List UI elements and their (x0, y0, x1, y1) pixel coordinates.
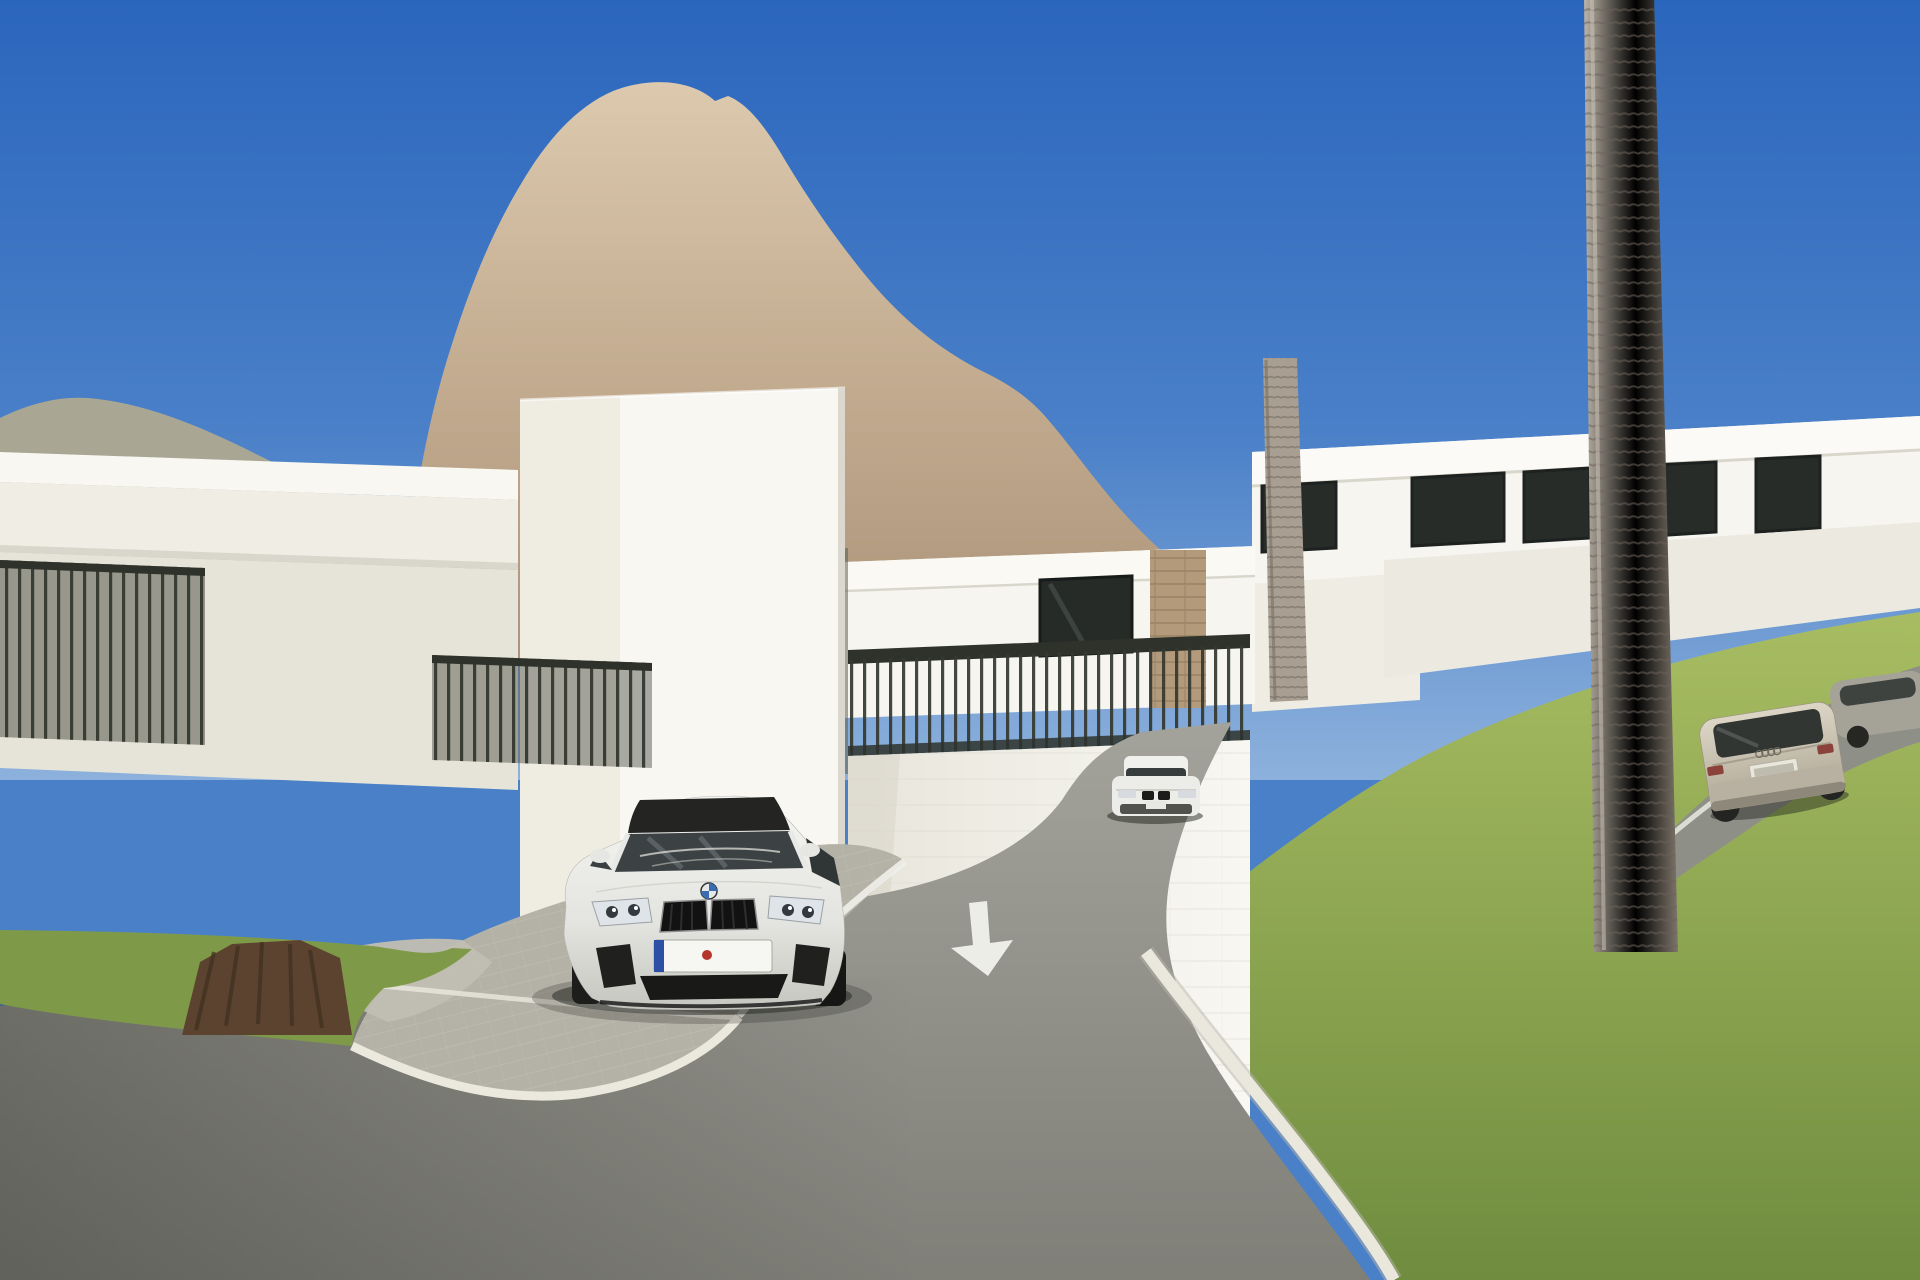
carbon-roof (628, 797, 790, 833)
bmw-roundel (701, 883, 717, 899)
headlight-left (592, 898, 652, 926)
railing-b (432, 655, 652, 768)
balcony-railing-left (0, 560, 205, 745)
architectural-render-scene (0, 0, 1920, 1280)
plate-seal (702, 950, 712, 960)
license-plate (654, 940, 772, 972)
